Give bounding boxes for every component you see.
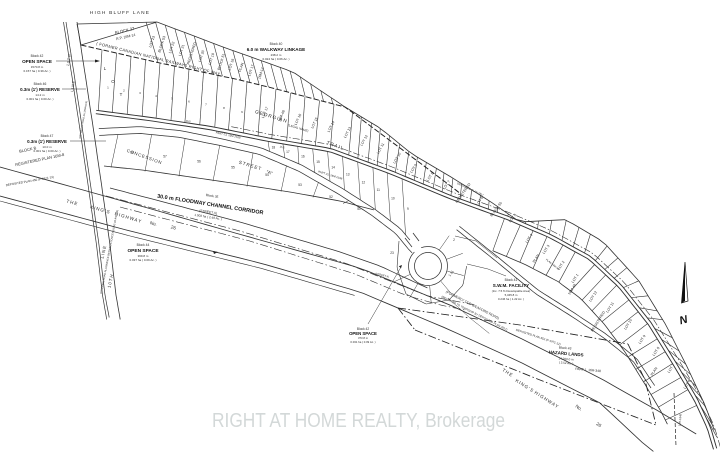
svg-text:54: 54 xyxy=(265,173,269,177)
svg-text:Block 42: Block 42 xyxy=(31,54,44,58)
svg-text:0.246 ha ( 1.22 Ac. ): 0.246 ha ( 1.22 Ac. ) xyxy=(498,297,524,301)
svg-text:0.037 ha ( 0.09 Ac. ): 0.037 ha ( 0.09 Ac. ) xyxy=(129,258,156,262)
svg-text:0.157 ha ( 0.39 Ac. ): 0.157 ha ( 0.39 Ac. ) xyxy=(23,69,50,73)
svg-text:Block 47: Block 47 xyxy=(41,134,54,138)
svg-text:55: 55 xyxy=(231,166,235,170)
svg-text:11: 11 xyxy=(377,188,381,192)
svg-text:12: 12 xyxy=(362,181,366,185)
svg-text:18: 18 xyxy=(272,146,276,150)
svg-text:Block 41: Block 41 xyxy=(505,278,518,282)
svg-text:Block 40: Block 40 xyxy=(270,42,283,46)
svg-text:58: 58 xyxy=(130,151,134,155)
svg-text:15: 15 xyxy=(316,160,320,164)
svg-text:0.3m (1') RESERVE: 0.3m (1') RESERVE xyxy=(20,87,60,92)
svg-text:O: O xyxy=(111,79,115,84)
svg-text:Block 46: Block 46 xyxy=(34,82,47,86)
svg-text:23: 23 xyxy=(390,251,394,255)
svg-text:14: 14 xyxy=(331,166,335,170)
svg-text:56: 56 xyxy=(197,160,201,164)
svg-text:6.0 m WALKWAY LINKAGE: 6.0 m WALKWAY LINKAGE xyxy=(247,47,305,52)
svg-text:52: 52 xyxy=(329,195,333,199)
svg-text:17: 17 xyxy=(286,150,290,154)
svg-text:57: 57 xyxy=(163,154,167,158)
svg-text:Block 44: Block 44 xyxy=(137,243,150,247)
svg-text:51: 51 xyxy=(357,207,361,211)
svg-text:S.W.M. FACILITY: S.W.M. FACILITY xyxy=(493,283,530,288)
svg-text:10: 10 xyxy=(391,197,395,201)
svg-text:9: 9 xyxy=(407,207,409,211)
svg-text:2: 2 xyxy=(453,238,455,242)
svg-text:13: 13 xyxy=(346,173,350,177)
svg-text:0.001 ha ( 0.00 Ac. ): 0.001 ha ( 0.00 Ac. ) xyxy=(33,149,60,153)
svg-text:RIGHT AT HOME REALTY, Brokerag: RIGHT AT HOME REALTY, Brokerage xyxy=(212,410,505,432)
svg-text:T: T xyxy=(120,92,123,97)
svg-text:HIGH BLUFF LANE: HIGH BLUFF LANE xyxy=(90,10,150,16)
svg-text:0.001 ha ( 0.00 Ac. ): 0.001 ha ( 0.00 Ac. ) xyxy=(26,97,53,101)
svg-text:OPEN SPACE: OPEN SPACE xyxy=(22,59,52,64)
svg-text:0.031 ha ( 0.09 Ac. ): 0.031 ha ( 0.09 Ac. ) xyxy=(350,340,375,344)
svg-text:53: 53 xyxy=(298,183,302,187)
svg-text:0.3m (1') RESERVE: 0.3m (1') RESERVE xyxy=(27,139,67,144)
svg-text:16: 16 xyxy=(301,154,305,158)
svg-text:0.024 ha ( 0.06 Ac. ): 0.024 ha ( 0.06 Ac. ) xyxy=(262,57,289,61)
